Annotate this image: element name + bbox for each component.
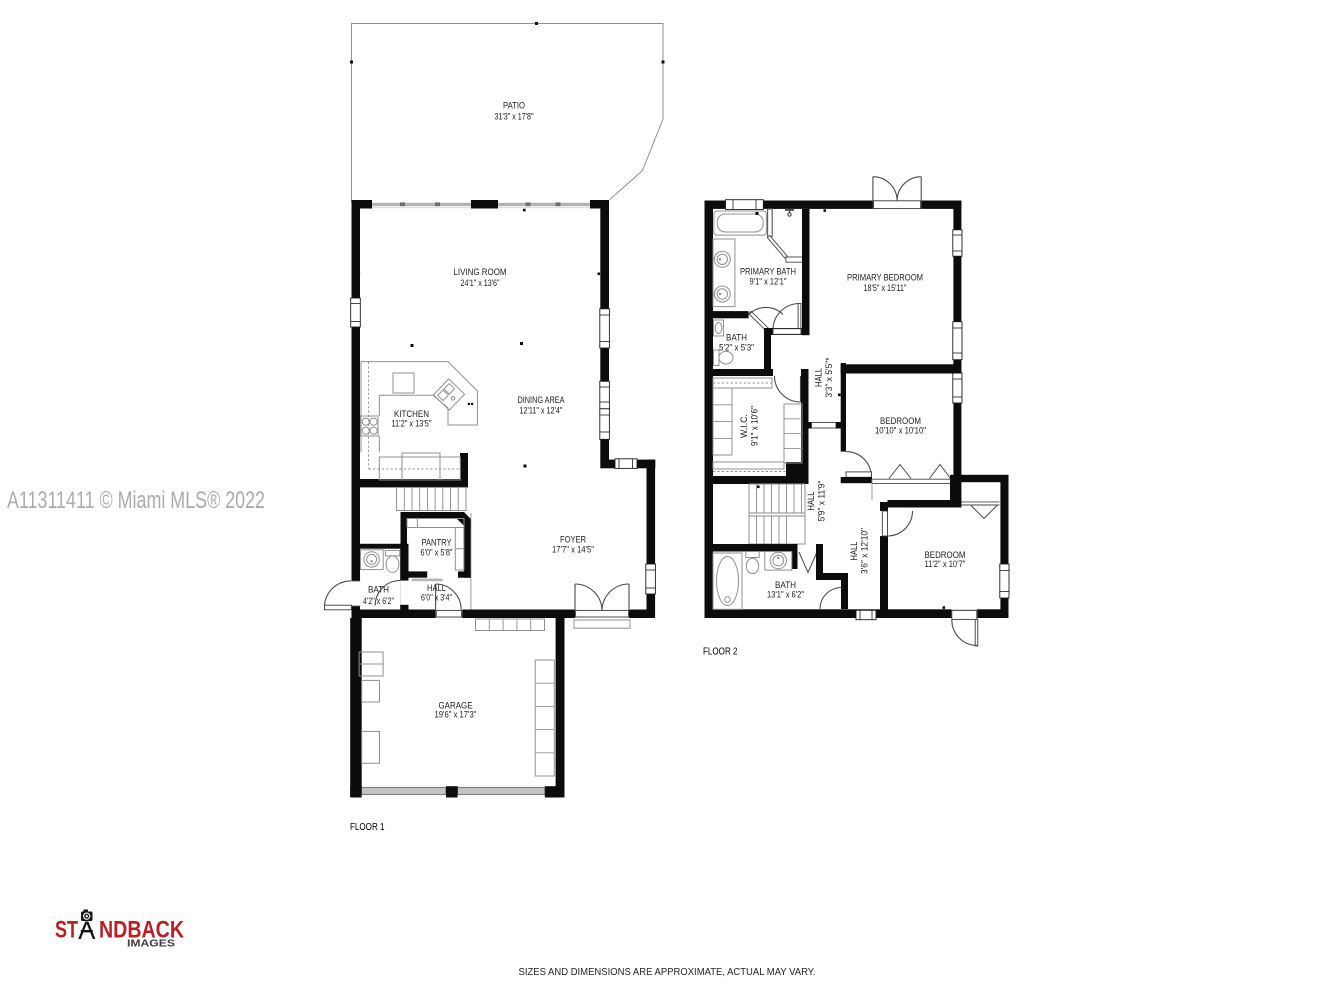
svg-text:3'3" x 5'5"*: 3'3" x 5'5"* xyxy=(824,357,834,397)
svg-text:9'1" x 10'6": 9'1" x 10'6" xyxy=(750,406,760,446)
svg-text:10'10" x 10'10": 10'10" x 10'10" xyxy=(875,426,926,436)
svg-text:FOYER: FOYER xyxy=(560,535,586,545)
svg-text:5'2" x 5'3": 5'2" x 5'3" xyxy=(719,343,754,353)
svg-text:11'2" x 10'7": 11'2" x 10'7" xyxy=(925,559,966,569)
svg-text:DINING AREA: DINING AREA xyxy=(518,395,566,405)
svg-text:13'1" x 6'2": 13'1" x 6'2" xyxy=(767,590,804,600)
svg-text:PRIMARY BEDROOM: PRIMARY BEDROOM xyxy=(847,273,923,283)
svg-text:SIZES AND DIMENSIONS ARE APPRO: SIZES AND DIMENSIONS ARE APPROXIMATE, AC… xyxy=(519,967,816,978)
svg-text:W.I.C.: W.I.C. xyxy=(739,414,749,438)
svg-text:6'0" x 3'4": 6'0" x 3'4" xyxy=(421,593,452,603)
svg-text:HALL: HALL xyxy=(849,542,859,561)
svg-text:17'7" x 14'5": 17'7" x 14'5" xyxy=(552,545,594,555)
svg-text:6'0" x 5'8": 6'0" x 5'8" xyxy=(421,548,453,558)
svg-text:HALL: HALL xyxy=(806,492,816,511)
svg-text:FLOOR 1: FLOOR 1 xyxy=(350,821,385,833)
svg-text:HALL: HALL xyxy=(427,583,446,593)
svg-text:11'2" x 13'5": 11'2" x 13'5" xyxy=(392,419,432,429)
svg-text:A11311411 © Miami MLS® 2022: A11311411 © Miami MLS® 2022 xyxy=(7,487,265,514)
svg-text:3'6" x 12'10": 3'6" x 12'10" xyxy=(860,528,870,574)
svg-text:12'11" x 12'4": 12'11" x 12'4" xyxy=(520,406,563,416)
svg-text:PRIMARY BATH: PRIMARY BATH xyxy=(740,267,796,277)
svg-text:4'2" x 6'2": 4'2" x 6'2" xyxy=(363,596,394,606)
svg-text:IMAGES: IMAGES xyxy=(127,938,175,950)
svg-text:HALL: HALL xyxy=(814,368,824,387)
svg-text:PATIO: PATIO xyxy=(503,101,525,111)
svg-text:LIVING ROOM: LIVING ROOM xyxy=(454,267,507,277)
svg-text:FLOOR 2: FLOOR 2 xyxy=(703,646,738,658)
svg-text:PANTRY: PANTRY xyxy=(422,538,452,548)
svg-text:19'6" x 17'3": 19'6" x 17'3" xyxy=(435,710,477,720)
svg-text:ST: ST xyxy=(55,917,78,944)
svg-text:BEDROOM: BEDROOM xyxy=(880,416,921,426)
svg-text:BATH: BATH xyxy=(726,333,747,343)
svg-text:18'5" x 15'11": 18'5" x 15'11" xyxy=(864,283,907,293)
svg-text:BATH: BATH xyxy=(368,585,389,595)
svg-text:5'9" x 11'9": 5'9" x 11'9" xyxy=(817,481,827,522)
svg-text:9'1" x 12'1": 9'1" x 12'1" xyxy=(750,277,787,287)
svg-text:KITCHEN: KITCHEN xyxy=(394,409,429,419)
svg-text:31'3" x 17'8": 31'3" x 17'8" xyxy=(495,112,534,122)
svg-text:24'1" x 13'6": 24'1" x 13'6" xyxy=(461,278,500,288)
svg-text:BATH: BATH xyxy=(775,580,796,590)
